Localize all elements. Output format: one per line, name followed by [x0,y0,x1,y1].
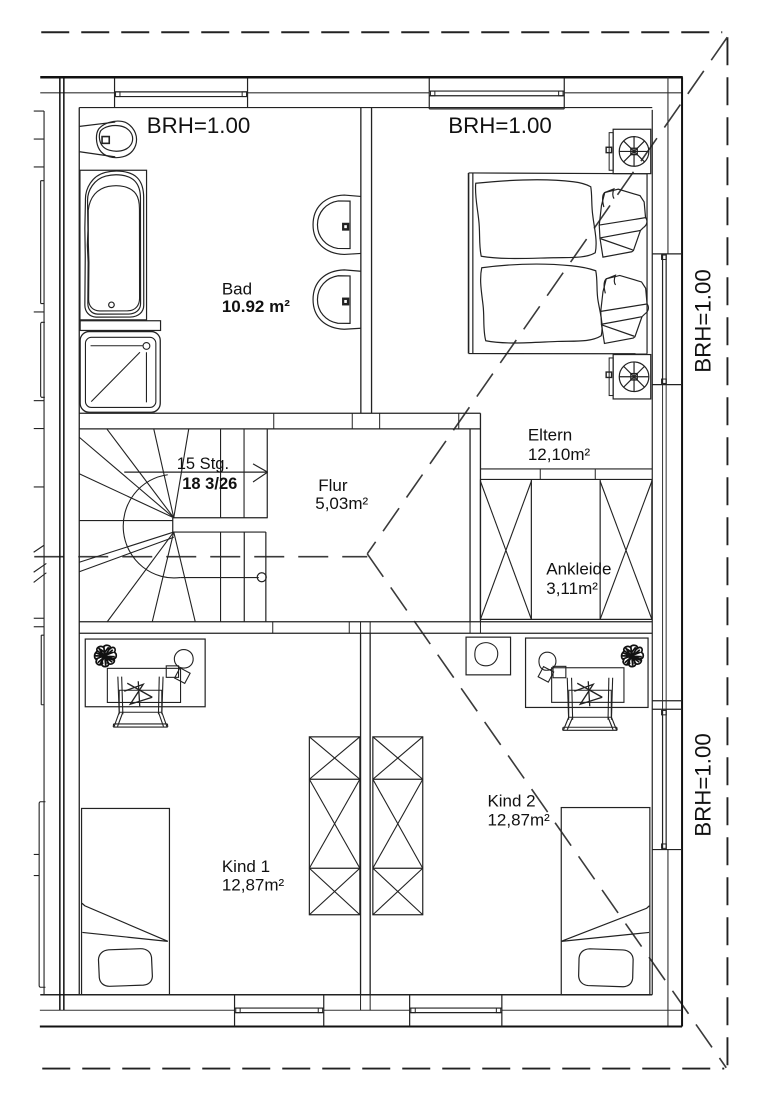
svg-text:15 Stg.: 15 Stg. [177,455,229,473]
svg-text:BRH=1.00: BRH=1.00 [690,733,715,837]
svg-text:Kind 2: Kind 2 [487,791,535,810]
svg-text:10.92 m²: 10.92 m² [222,297,290,316]
svg-text:12,87m²: 12,87m² [487,810,550,829]
svg-text:12,10m²: 12,10m² [528,445,591,464]
svg-text:Ankleide: Ankleide [546,559,611,578]
svg-text:3,11m²: 3,11m² [546,579,598,598]
svg-text:Flur: Flur [318,476,348,495]
svg-text:5,03m²: 5,03m² [315,494,368,513]
svg-text:BRH=1.00: BRH=1.00 [448,113,552,138]
svg-text:12,87m²: 12,87m² [222,875,285,894]
svg-text:18 3/26: 18 3/26 [182,475,237,493]
svg-text:BRH=1.00: BRH=1.00 [147,113,251,138]
svg-text:Eltern: Eltern [528,425,572,444]
svg-text:Kind 1: Kind 1 [222,857,270,876]
svg-text:Bad: Bad [222,279,252,298]
svg-text:BRH=1.00: BRH=1.00 [690,269,715,373]
